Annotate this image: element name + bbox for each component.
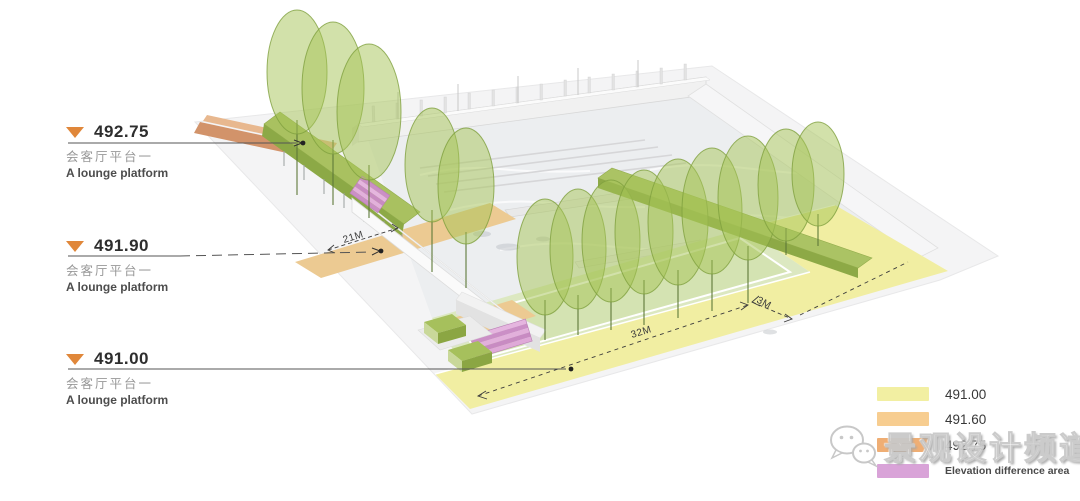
platform-name-zh: 会客厅平台一	[66, 260, 296, 279]
elevation-value: 492.75	[94, 122, 149, 142]
legend-swatch	[877, 387, 929, 401]
legend-row-491-00: 491.00	[877, 385, 986, 403]
wechat-icon	[826, 422, 880, 470]
watermark-text: 景观设计频道	[884, 423, 1080, 469]
platform-name-zh: 会客厅平台一	[66, 146, 296, 165]
elevation-label-2: 491.90 会客厅平台一 A lounge platform	[66, 238, 296, 294]
elevation-value: 491.90	[94, 236, 149, 256]
legend-label: 491.00	[945, 387, 986, 402]
elevation-marker-icon	[66, 354, 84, 365]
landscape-section-diagram: 21M 32M 3M	[0, 0, 1080, 501]
elevation-marker-icon	[66, 241, 84, 252]
watermark: 景观设计频道	[826, 422, 1080, 470]
platform-name-zh: 会客厅平台一	[66, 373, 296, 392]
platform-name-en: A lounge platform	[66, 280, 296, 294]
elevation-label-1: 492.75 会客厅平台一 A lounge platform	[66, 124, 296, 180]
elevation-label-3: 491.00 会客厅平台一 A lounge platform	[66, 351, 296, 407]
elevation-marker-icon	[66, 127, 84, 138]
platform-name-en: A lounge platform	[66, 166, 296, 180]
elevation-value: 491.00	[94, 349, 149, 369]
platform-name-en: A lounge platform	[66, 393, 296, 407]
